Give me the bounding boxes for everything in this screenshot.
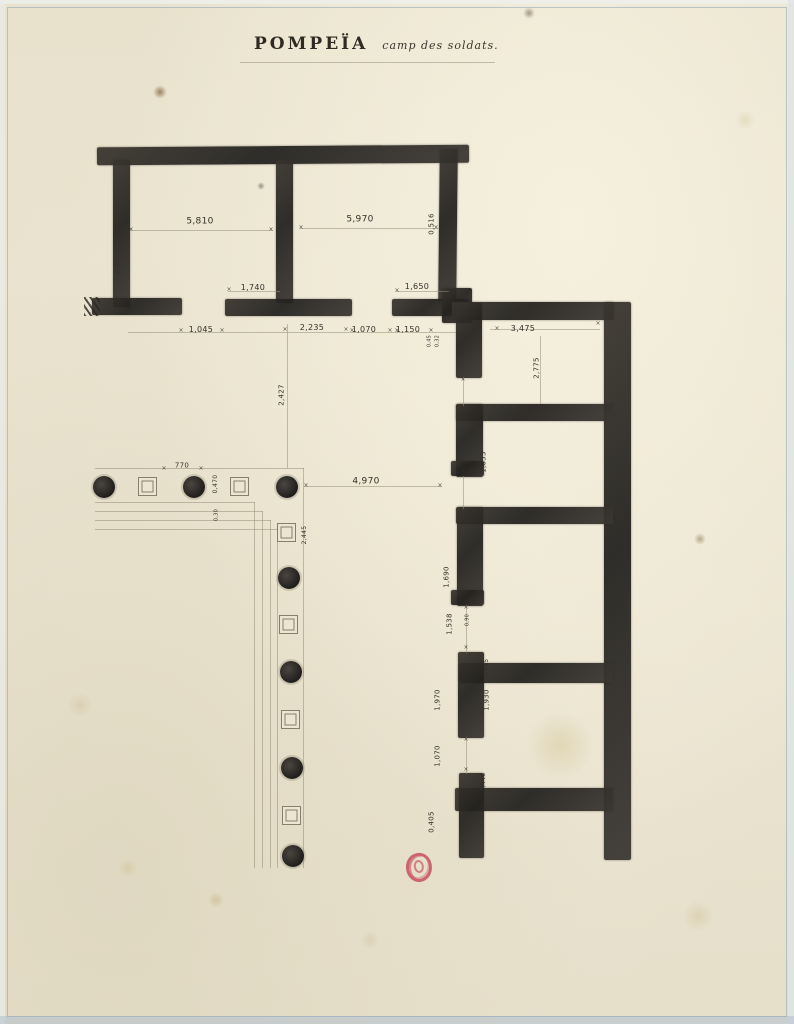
pencil-line [287, 324, 288, 468]
dimension-label: 770 [175, 463, 189, 470]
dimension-label: 0,90 [466, 614, 471, 626]
paper-stain [682, 900, 714, 932]
column-circle [282, 845, 304, 867]
paper-stain [153, 85, 167, 99]
dimension-label: 0,405 [429, 811, 436, 833]
dimension-label: 1,035 [481, 451, 488, 473]
dimension-label: 2,415 [459, 337, 465, 356]
dimension-tick: × [463, 645, 468, 651]
dimension-label: 1,650 [405, 283, 429, 291]
dimension-label: 1,045 [189, 326, 213, 334]
dimension-tick: × [343, 327, 348, 333]
dimension-tick: × [276, 287, 281, 293]
column-circle [276, 476, 298, 498]
dimension-tick: × [595, 321, 600, 327]
ink-wall [458, 652, 484, 738]
pilaster-square [230, 477, 249, 496]
pilaster-square [138, 477, 157, 496]
ink-wall [451, 590, 484, 605]
drawing-subtitle: camp des soldats. [382, 39, 498, 52]
paper-stain [735, 110, 755, 130]
dimension-label: 2,427 [279, 384, 286, 406]
dimension-tick: × [463, 605, 468, 611]
dimension-tick: × [161, 466, 166, 472]
dimension-tick: × [433, 225, 438, 231]
dimension-label: 1,930 [484, 689, 491, 711]
paper-stain [523, 7, 535, 19]
dimension-label: 2,235 [300, 324, 324, 332]
dimension-tick: × [226, 287, 231, 293]
dimension-tick: × [428, 328, 433, 334]
column-circle [280, 661, 302, 683]
pencil-line [463, 476, 464, 509]
pencil-line [254, 502, 255, 868]
ink-wall [604, 302, 631, 860]
drawing-title: POMPEÏA [254, 34, 368, 54]
pencil-line [95, 520, 271, 521]
column-circle [183, 476, 205, 498]
dimension-tick: × [460, 377, 465, 383]
pencil-line [490, 329, 600, 330]
pencil-line [270, 520, 271, 868]
dimension-tick: × [394, 328, 399, 334]
paper-stain [257, 182, 265, 190]
dimension-tick: × [178, 328, 183, 334]
dimension-tick: × [387, 328, 392, 334]
scan-edge-right [788, 0, 794, 1024]
dimension-tick: × [349, 328, 354, 334]
column-circle [93, 476, 115, 498]
column-circle [281, 757, 303, 779]
dimension-label: 5,970 [346, 216, 373, 225]
dimension-tick: × [394, 288, 399, 294]
column-circle [278, 567, 300, 589]
dimension-label: 2,445 [484, 659, 490, 678]
pencil-line [95, 502, 255, 503]
dimension-label: 1,740 [241, 284, 265, 292]
title-block: POMPEÏA camp des soldats. [254, 34, 499, 54]
pilaster-square [282, 806, 301, 825]
scan-edge-left [0, 0, 5, 1024]
paper-stain [208, 892, 224, 908]
dimension-tick: × [128, 227, 133, 233]
ink-wall [276, 160, 293, 303]
paper-stain [68, 693, 92, 717]
dimension-tick: × [463, 737, 468, 743]
dimension-tick: × [282, 327, 287, 333]
pencil-line [262, 511, 263, 868]
dimension-label: 0,50 [116, 259, 122, 274]
paper-stain [694, 533, 706, 545]
dimension-label: 0,470 [213, 475, 219, 494]
pencil-line [95, 529, 278, 530]
dimension-label: 1,970 [435, 689, 442, 711]
ink-wall [92, 298, 182, 315]
dimension-label: 2,446 [481, 773, 487, 792]
dimension-label: 0,32 [436, 335, 441, 347]
pilaster-square [277, 523, 296, 542]
pencil-line [95, 511, 263, 512]
dimension-tick: × [494, 326, 499, 332]
dimension-tick: × [463, 767, 468, 773]
pencil-line [396, 291, 449, 292]
dimension-label: 0,45 [428, 335, 433, 347]
dimension-tick: × [460, 469, 465, 475]
dimension-tick: × [444, 288, 449, 294]
dimension-tick: × [463, 557, 468, 563]
dimension-tick: × [219, 328, 224, 334]
dimension-label: 1,070 [435, 745, 442, 767]
paper-stain [526, 711, 594, 779]
scan-edge-bottom [0, 1016, 794, 1024]
dimension-label: 0,30 [215, 509, 220, 521]
dimension-label: 5,810 [186, 218, 213, 227]
scanned-plan-page: POMPEÏA camp des soldats. 5,8105,9700,51… [0, 0, 794, 1024]
ink-wall [113, 160, 130, 307]
dimension-label: 1,538 [447, 613, 454, 635]
dimension-label: 1,070 [352, 326, 376, 334]
dimension-tick: × [268, 227, 273, 233]
dimension-label: 4,970 [352, 478, 379, 487]
pilaster-square [281, 710, 300, 729]
ink-wall [438, 149, 458, 301]
pencil-line [130, 230, 273, 231]
pencil-line [300, 228, 438, 229]
ink-wall [225, 299, 352, 316]
pilaster-square [279, 615, 298, 634]
collection-stamp-icon [404, 851, 435, 884]
paper-stain [361, 931, 379, 949]
dimension-label: 1,690 [444, 566, 451, 588]
dimension-tick: × [298, 225, 303, 231]
paper-stain [118, 858, 138, 878]
pencil-line [240, 62, 495, 63]
dimension-label: 2,775 [534, 357, 541, 379]
dimension-label: 2,445 [302, 526, 308, 545]
wall-hatching [84, 297, 100, 316]
dimension-label: 3,475 [511, 325, 535, 333]
scan-edge-top [0, 0, 794, 4]
dimension-tick: × [198, 466, 203, 472]
dimension-tick: × [437, 483, 442, 489]
dimension-tick: × [303, 483, 308, 489]
